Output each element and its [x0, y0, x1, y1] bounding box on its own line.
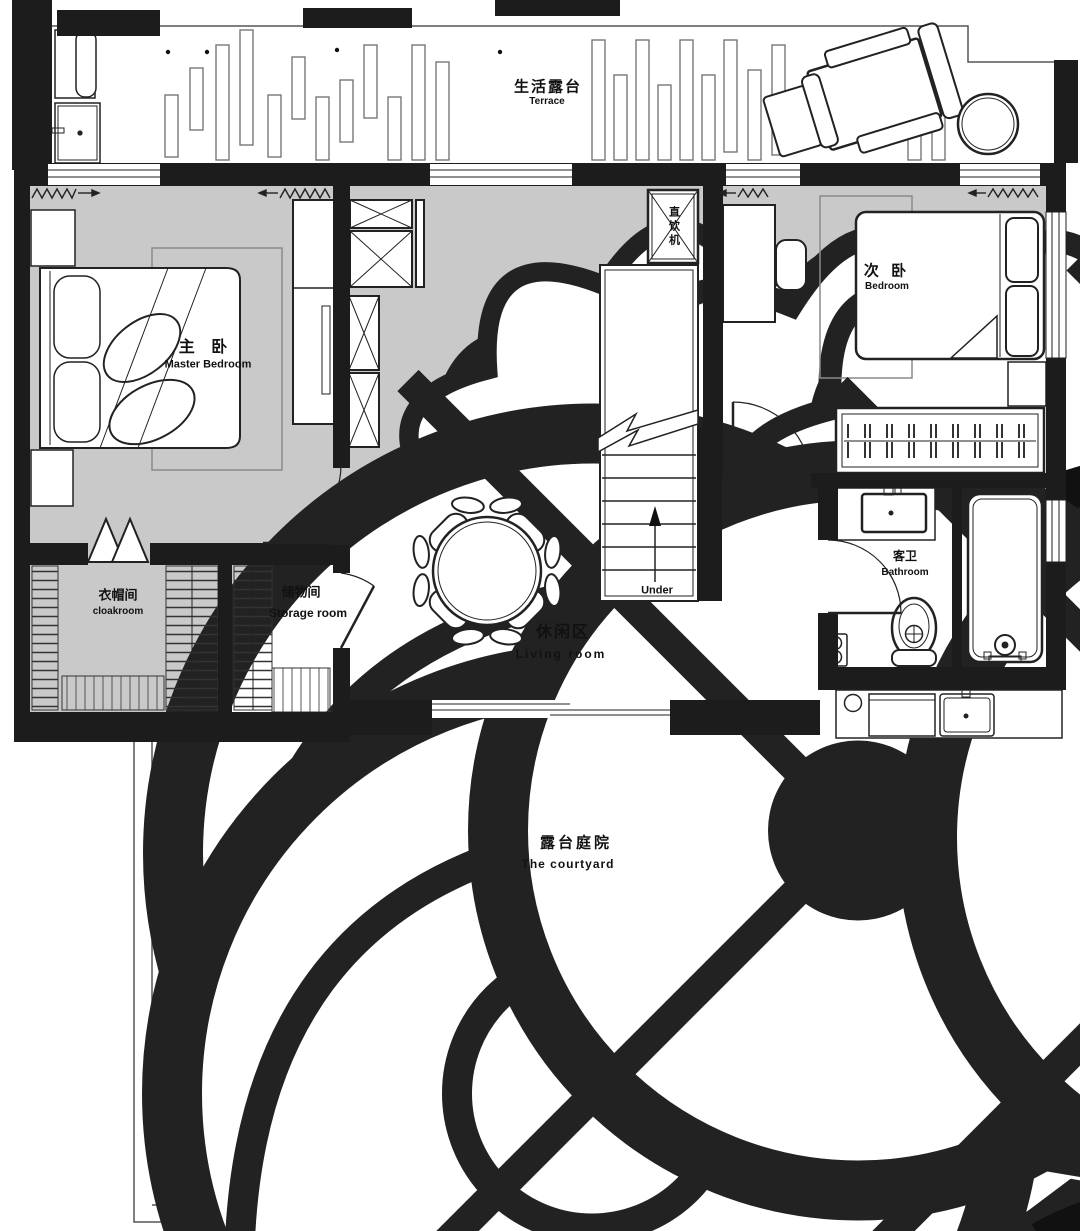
label-storage-room-en: Storage room — [269, 607, 347, 619]
desk — [723, 205, 775, 322]
side-table — [958, 94, 1018, 154]
pillow — [1006, 286, 1038, 356]
desk-chair — [776, 240, 806, 290]
shelf-rack — [272, 668, 330, 712]
label-bedroom-cn: 次 卧 — [864, 264, 910, 279]
vanity — [836, 486, 935, 540]
label-bathroom-cn: 客卫 — [893, 550, 917, 562]
bathtub — [968, 494, 1042, 662]
label-stairs-under: Under — [641, 586, 673, 597]
label-bedroom-en: Bedroom — [865, 282, 909, 292]
label-master-bedroom-cn: 主 卧 — [179, 340, 233, 356]
closet — [836, 408, 1044, 473]
label-cloakroom-en: cloakroom — [93, 607, 144, 617]
shelf-rack — [62, 676, 164, 710]
pillow — [1006, 218, 1038, 282]
label-storage-room-cn: 储物间 — [281, 586, 320, 599]
label-living-room-en: Living room — [516, 648, 607, 660]
toilet — [892, 598, 936, 666]
label-master-bedroom-en: Master Bedroom — [165, 360, 252, 371]
label-terrace-cn: 生活露台 — [514, 80, 582, 95]
label-courtyard-en: The courtyard — [521, 858, 614, 870]
label-cloakroom-cn: 衣帽间 — [98, 589, 137, 602]
counter-sink — [940, 690, 994, 736]
label-terrace-en: Terrace — [529, 97, 564, 107]
stairs — [598, 265, 698, 601]
round-table — [433, 517, 541, 625]
outdoor-counter — [836, 690, 1062, 738]
nightstand — [31, 210, 75, 266]
label-bathroom-en: Bathroom — [881, 568, 928, 578]
nightstand — [31, 450, 73, 506]
label-courtyard-cn: 露台庭院 — [540, 836, 612, 851]
nightstand — [1008, 362, 1046, 406]
floor-plan-drawing — [0, 0, 1080, 1231]
round-sink — [845, 695, 862, 712]
label-water-dispenser: 直饮机 — [668, 206, 679, 248]
label-living-room-cn: 休闲区 — [536, 625, 590, 641]
laundry-appliances — [52, 30, 100, 163]
shelf-rack — [32, 566, 58, 710]
floor-plan: 生活露台 Terrace 主 卧 Master Bedroom 次 卧 Bedr… — [0, 0, 1080, 1231]
